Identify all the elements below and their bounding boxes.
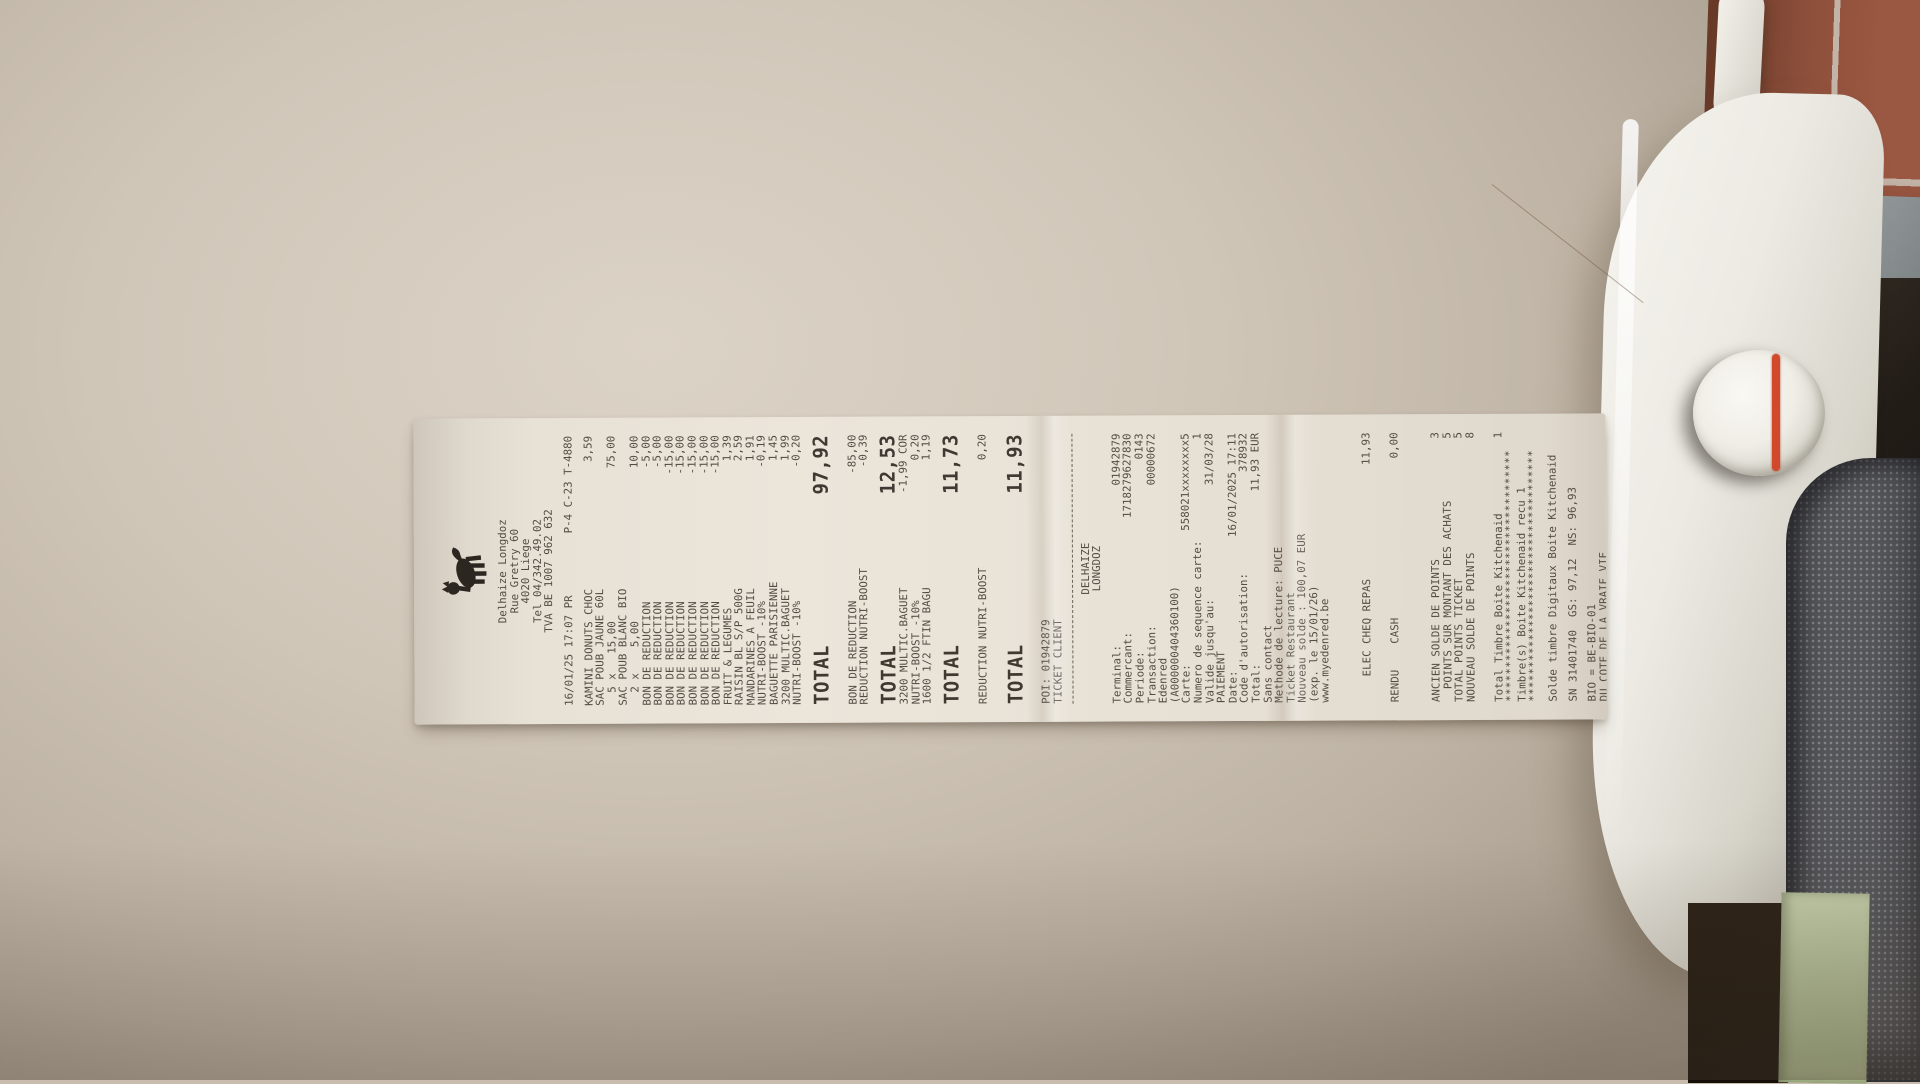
line-value: 11,93 xyxy=(1010,434,1023,494)
receipt-line: TOTAL11,73 xyxy=(934,434,959,704)
receipt-line xyxy=(1476,432,1493,702)
receipt-line xyxy=(1400,432,1431,702)
line-label: ELEC CHEQ REPAS xyxy=(1361,579,1373,703)
line-value: 1,45 xyxy=(767,435,779,461)
receipt-line: TOTAL11,93 xyxy=(998,434,1023,704)
line-label: Total Timbre Boite Kitchenaid xyxy=(1492,513,1504,702)
receipt-line xyxy=(960,434,977,704)
line-value: 1 xyxy=(1191,433,1203,440)
line-value: 00000672 xyxy=(1145,433,1157,485)
line-value: 11,93 EUR xyxy=(1249,433,1261,492)
receipt-line: TOTAL97,92 xyxy=(804,435,829,705)
line-label: REDUCTION NUTRI-BOOST xyxy=(977,568,989,705)
receipt-line: DU COTE DE LA VRAIE VIE xyxy=(1597,431,1606,701)
appliance-knob xyxy=(1693,350,1825,476)
line-value: 97,92 xyxy=(816,435,829,495)
line-value: -15,00 xyxy=(686,435,698,474)
line-label: TOTAL xyxy=(947,645,960,705)
line-value: 0,00 xyxy=(1388,432,1400,458)
receipt-line xyxy=(1330,432,1361,702)
delhaize-lion-logo xyxy=(439,436,490,706)
line-label: TOTAL xyxy=(817,645,830,705)
line-value: 0143 xyxy=(1133,433,1145,459)
line-value: 75,00 xyxy=(605,436,617,469)
line-value: 1 xyxy=(1492,432,1504,439)
line-label: REDUCTION NUTRI-BOOST xyxy=(858,568,870,705)
receipt-line: 1600 1/2 FTIN BAGU1,19 xyxy=(921,434,934,704)
line-value: -0,20 xyxy=(791,435,803,468)
line-label: TOTAL xyxy=(884,645,897,705)
line-value: 10,00 xyxy=(628,436,640,469)
line-label: NUTRI-BOOST -10% xyxy=(791,601,803,705)
receipt-line xyxy=(1071,434,1073,704)
line-label: TOTAL xyxy=(1010,644,1023,704)
receipt-paper: Delhaize LongdozRue Gretry 604020 LiegeT… xyxy=(413,413,1606,724)
receipt-line: NUTRI-BOOST -10%-0,20 xyxy=(791,435,804,705)
line-value: 11,93 xyxy=(1360,432,1372,465)
receipt-line xyxy=(1372,432,1389,702)
line-value: 31/03/28 xyxy=(1203,433,1215,485)
table-surface: Delhaize LongdozRue Gretry 604020 LiegeT… xyxy=(0,0,1920,1080)
line-value: P-4 C-23 T-4880 xyxy=(562,436,574,534)
line-value: 8 xyxy=(1464,432,1476,439)
line-label: Total: xyxy=(1250,664,1262,703)
floor-shadow xyxy=(1688,903,1788,1083)
line-value: 0,20 xyxy=(976,434,988,460)
line-value: -0,39 xyxy=(858,435,870,468)
receipt: Delhaize LongdozRue Gretry 604020 LiegeT… xyxy=(413,413,1606,724)
knob-stripe xyxy=(1772,354,1780,471)
receipt-lines: Delhaize LongdozRue Gretry 604020 LiegeT… xyxy=(496,431,1606,706)
receipt-line xyxy=(830,435,847,705)
line-label: RENDU CASH xyxy=(1389,618,1401,703)
receipt-line: TICKET CLIENT xyxy=(1051,434,1064,704)
line-label: NOUVEAU SOLDE DE POINTS xyxy=(1465,552,1477,702)
line-value: 558021xxxxxxxx5 xyxy=(1180,433,1192,531)
line-label: 1600 1/2 FTIN BAGU xyxy=(921,587,933,704)
line-value: 12,53 xyxy=(883,434,896,494)
receipt-line: TOTAL12,53 xyxy=(871,434,896,704)
receipt-line: REDUCTION NUTRI-BOOST-0,39 xyxy=(858,435,871,705)
floor-strip xyxy=(1778,892,1869,1084)
line-value: 3,59 xyxy=(582,436,594,462)
receipt-line xyxy=(988,434,997,704)
line-value: 1,19 xyxy=(921,434,933,460)
line-value: 11,73 xyxy=(946,434,959,494)
receipt-line xyxy=(1024,434,1041,704)
line-label: 16/01/25 17:07 PR xyxy=(563,595,575,706)
line-label: Periode: xyxy=(1134,651,1146,703)
